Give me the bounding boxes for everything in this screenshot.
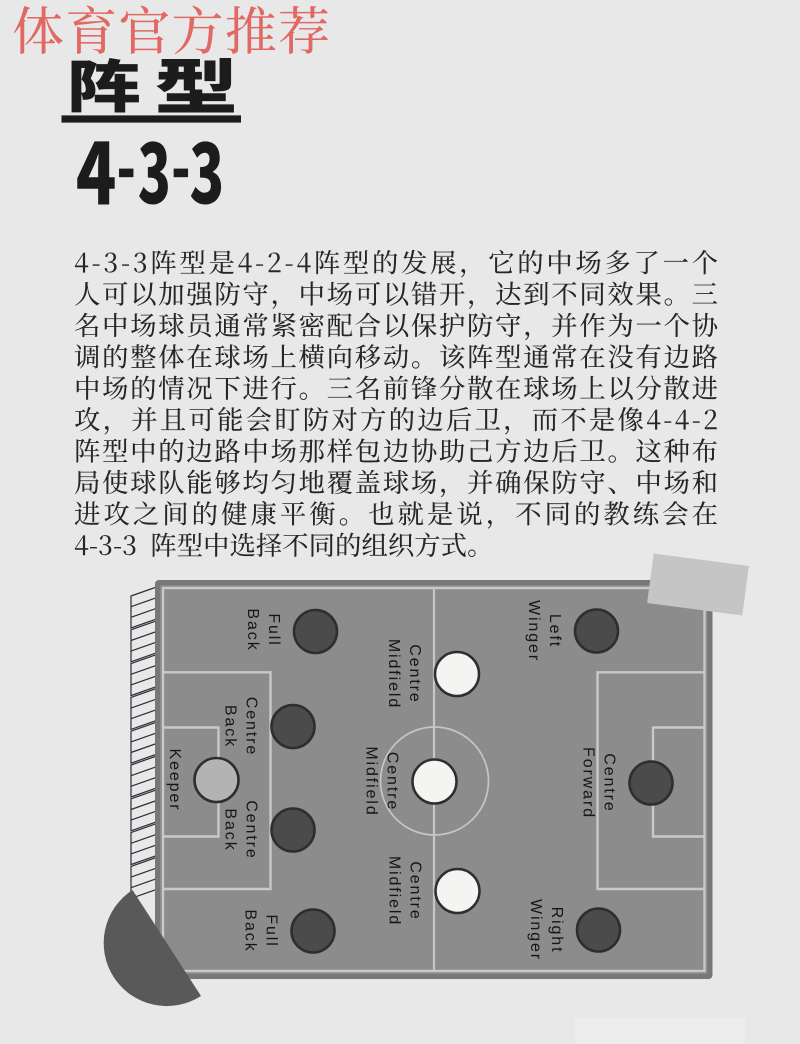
svg-text:Winger: Winger	[525, 600, 542, 662]
svg-text:Back: Back	[244, 608, 261, 651]
svg-text:Full: Full	[263, 914, 280, 947]
svg-text:Centre: Centre	[601, 753, 618, 812]
svg-text:Centre: Centre	[243, 800, 260, 859]
svg-text:Centre: Centre	[407, 861, 424, 920]
svg-text:Back: Back	[222, 705, 239, 748]
svg-text:Keeper: Keeper	[166, 749, 183, 812]
svg-text:Centre: Centre	[384, 752, 401, 811]
svg-text:Back: Back	[242, 909, 259, 952]
svg-text:Centre: Centre	[243, 697, 260, 756]
svg-text:Midfield: Midfield	[363, 746, 380, 816]
svg-text:Forward: Forward	[580, 747, 597, 819]
svg-text:Back: Back	[222, 808, 239, 851]
svg-text:Centre: Centre	[406, 644, 423, 703]
svg-text:Midfield: Midfield	[386, 856, 403, 926]
svg-text:Winger: Winger	[527, 899, 544, 961]
svg-text:Full: Full	[265, 613, 282, 646]
svg-text:Midfield: Midfield	[385, 639, 402, 709]
svg-text:Left: Left	[546, 614, 563, 648]
svg-text:Right: Right	[548, 907, 565, 954]
